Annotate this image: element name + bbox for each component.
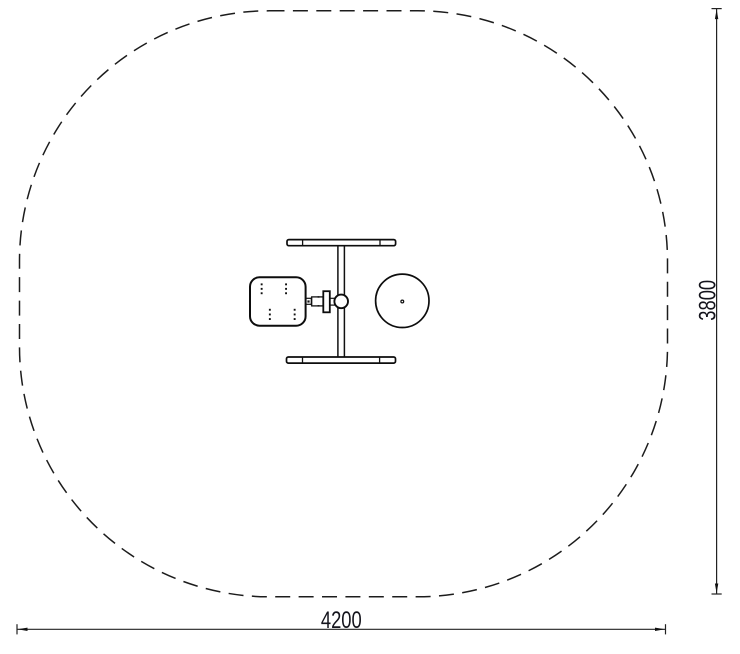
svg-text:3800: 3800 [693,280,721,321]
svg-text:4200: 4200 [321,606,362,634]
